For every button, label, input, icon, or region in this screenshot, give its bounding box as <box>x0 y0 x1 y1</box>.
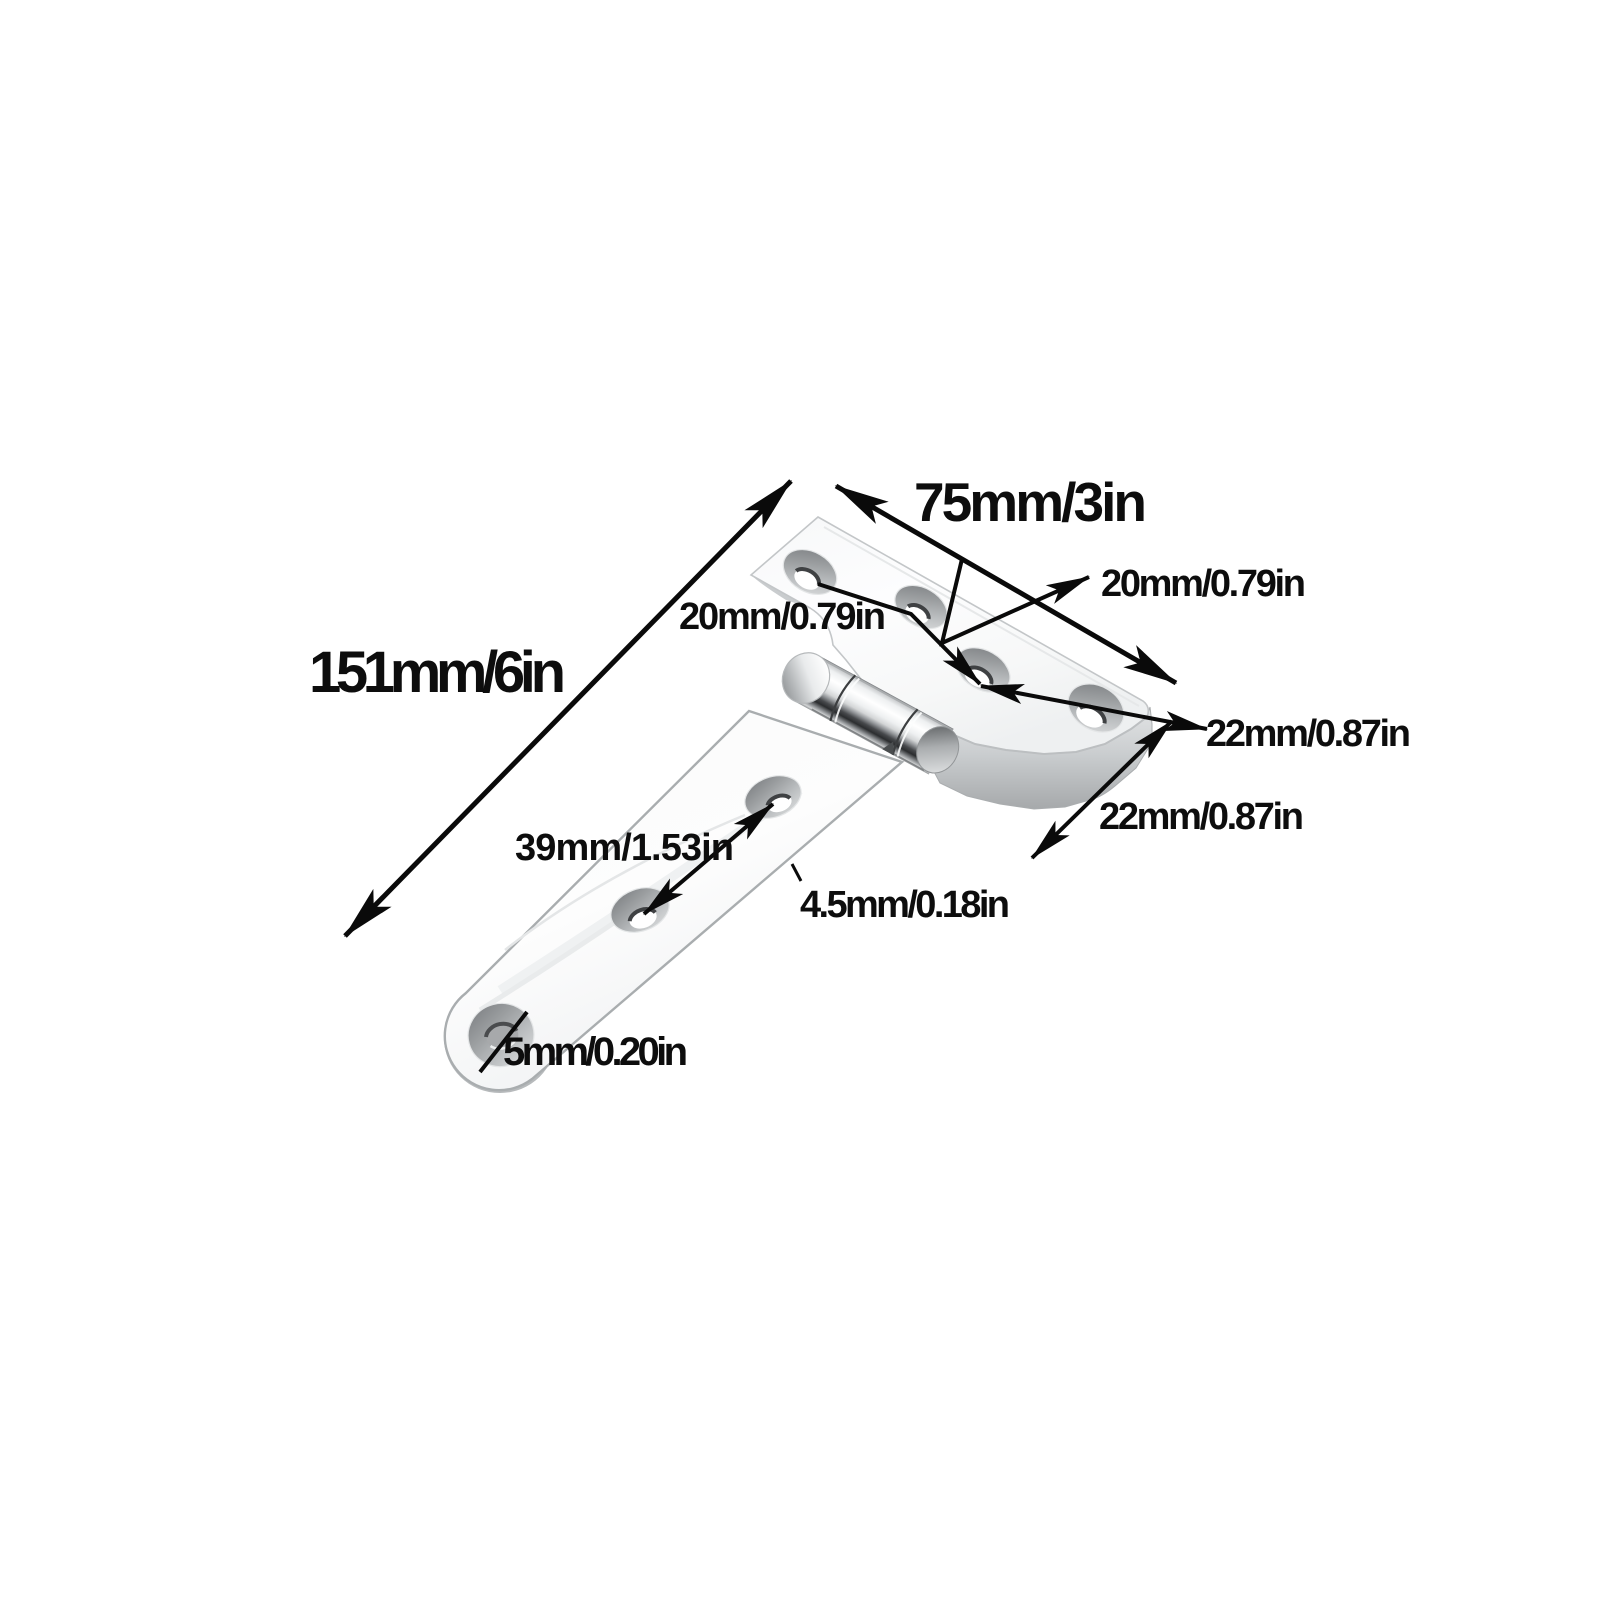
svg-text:5mm/0.20in: 5mm/0.20in <box>503 1030 688 1074</box>
svg-text:151mm/6in: 151mm/6in <box>309 640 566 705</box>
svg-text:22mm/0.87in: 22mm/0.87in <box>1206 713 1411 755</box>
svg-text:20mm/0.79in: 20mm/0.79in <box>1101 563 1306 605</box>
svg-text:4.5mm/0.18in: 4.5mm/0.18in <box>800 884 1010 926</box>
svg-text:22mm/0.87in: 22mm/0.87in <box>1099 796 1304 838</box>
svg-text:75mm/3in: 75mm/3in <box>914 471 1147 533</box>
svg-text:39mm/1.53in: 39mm/1.53in <box>515 827 734 869</box>
svg-text:20mm/0.79in: 20mm/0.79in <box>679 596 886 638</box>
